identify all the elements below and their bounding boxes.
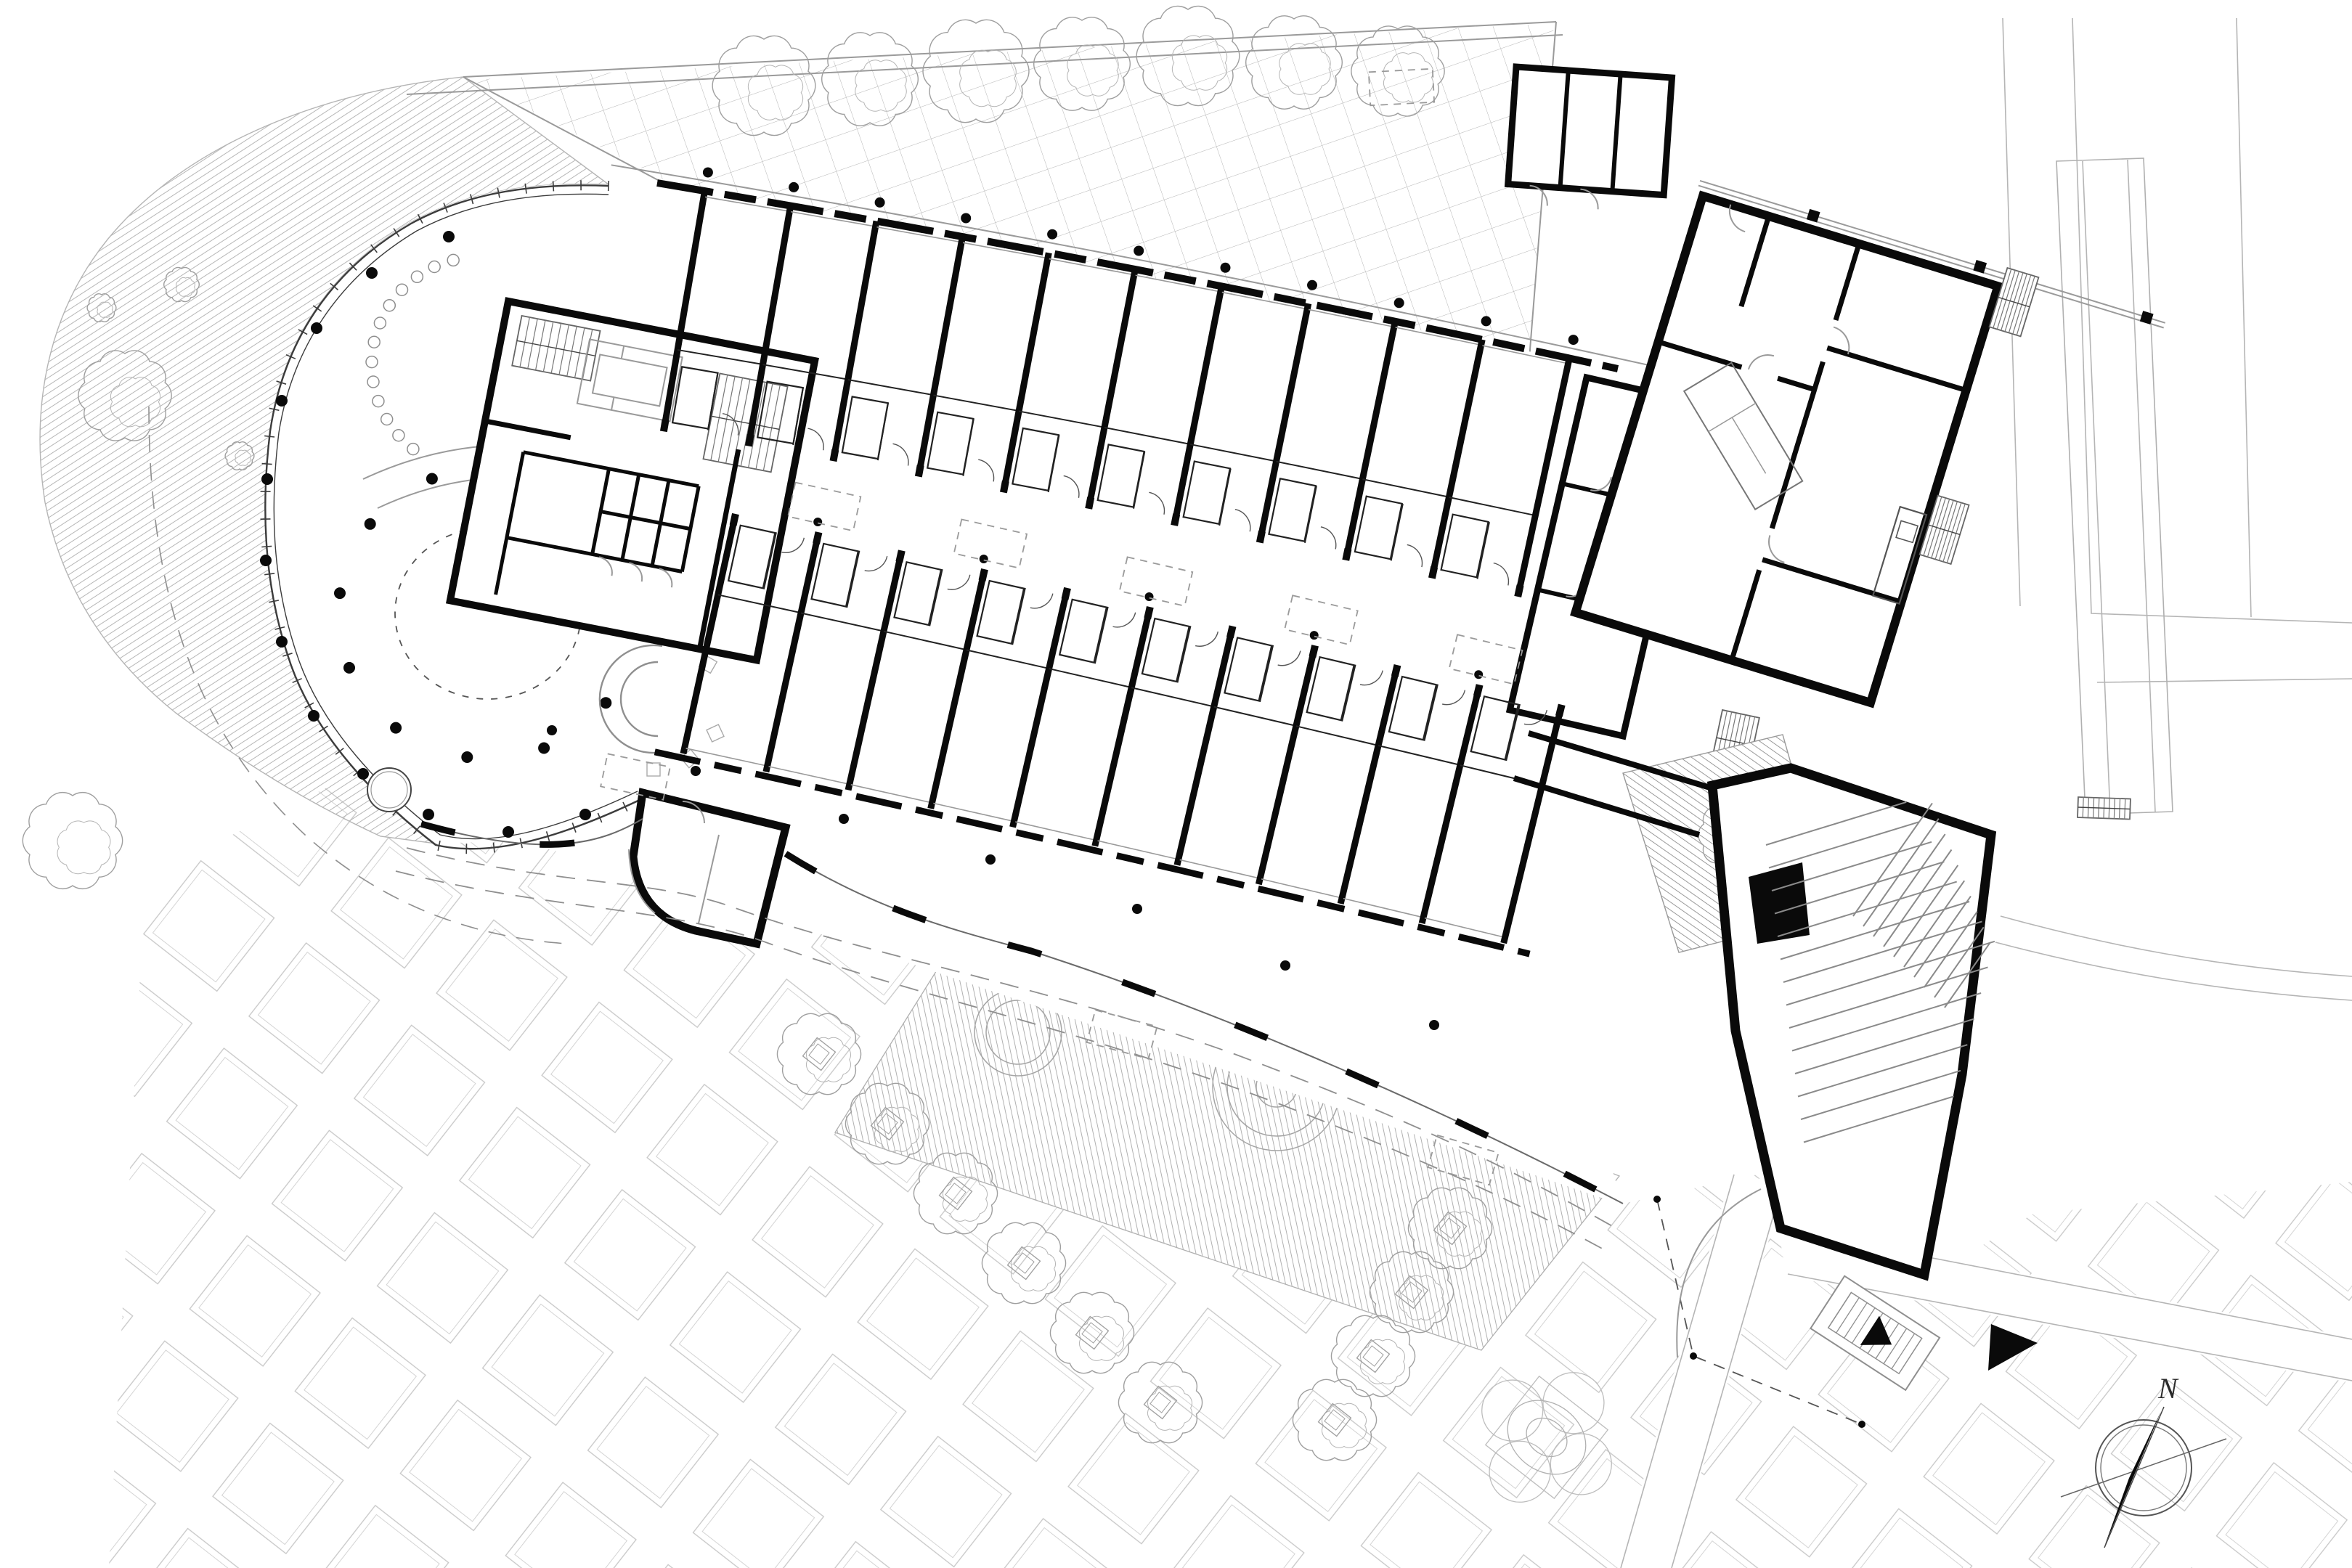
site-roads xyxy=(2003,18,2352,682)
column-dot xyxy=(1280,960,1290,971)
column-dot xyxy=(423,809,434,820)
column-dot xyxy=(365,518,376,530)
ramp-end-treads xyxy=(2078,797,2131,819)
column-dot xyxy=(1394,298,1404,308)
north-label: N xyxy=(2157,1372,2179,1405)
column-dot xyxy=(961,213,971,224)
column-dot xyxy=(366,267,378,279)
column-dot xyxy=(547,725,557,735)
column-dot xyxy=(260,555,272,566)
column-dot xyxy=(980,555,988,563)
tree-icon xyxy=(23,793,122,889)
column-dot xyxy=(579,809,591,820)
column-dot xyxy=(600,697,611,709)
column-dot xyxy=(1481,316,1492,326)
wing-east xyxy=(1568,174,2167,752)
column-dot xyxy=(357,768,369,780)
column-dot xyxy=(813,518,822,526)
column-dot xyxy=(839,814,849,824)
lobby-column-drum xyxy=(367,768,411,812)
path-curve xyxy=(1995,916,2352,1000)
column-dot xyxy=(443,231,455,242)
column-dot xyxy=(308,710,320,722)
floor-plan-drawing: N xyxy=(0,0,2352,1568)
column-dot xyxy=(703,168,713,178)
column-dot xyxy=(1474,670,1483,679)
column-dot xyxy=(1132,904,1142,914)
service-block-nw xyxy=(450,301,815,660)
column-dot xyxy=(1221,263,1231,273)
column-dot xyxy=(1310,631,1319,640)
column-dot xyxy=(985,854,996,865)
ramp-band xyxy=(2056,158,2173,814)
exterior-stair xyxy=(1990,268,2039,336)
column-dot xyxy=(1568,335,1579,345)
column-dot xyxy=(334,587,346,599)
column-dot xyxy=(276,636,288,648)
column-dot xyxy=(1429,1020,1439,1030)
column-dot xyxy=(691,766,701,776)
column-dot xyxy=(343,662,355,674)
column-dot xyxy=(1047,229,1057,240)
column-dot xyxy=(789,182,799,192)
column-dot xyxy=(311,322,322,334)
column-dot xyxy=(461,751,473,763)
column-dot xyxy=(276,395,288,407)
floor-plan-sheet: N xyxy=(0,0,2352,1568)
column-dot xyxy=(875,197,885,208)
column-dot xyxy=(502,826,514,838)
column-dot xyxy=(390,722,402,734)
column-dot xyxy=(1307,280,1317,290)
column-dot xyxy=(1134,246,1144,256)
column-dot xyxy=(1145,592,1154,601)
column-dot xyxy=(538,743,550,754)
column-dot xyxy=(261,473,273,485)
column-dot xyxy=(426,473,438,485)
black-wedge-wall xyxy=(1749,862,1810,944)
ramp-band-inner xyxy=(2083,160,2155,813)
